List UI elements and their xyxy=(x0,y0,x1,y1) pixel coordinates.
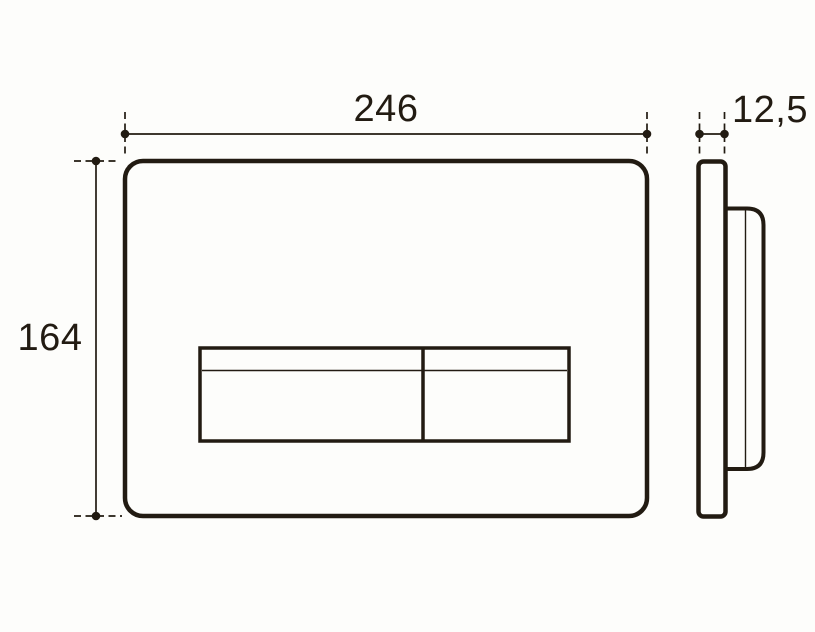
dimension-height-label: 164 xyxy=(18,317,83,359)
technical-drawing-canvas: 246 164 12,5 xyxy=(0,0,815,632)
plate-front-outline xyxy=(125,161,647,516)
plate-side-outline xyxy=(699,162,726,517)
dimension-endpoint-dot xyxy=(121,130,130,139)
dimension-endpoint-dot xyxy=(92,512,101,521)
dimension-endpoint-dot xyxy=(92,157,101,166)
dimension-depth-label: 12,5 xyxy=(732,89,808,131)
dimension-width: 246 xyxy=(121,88,652,158)
mounting-housing-outline xyxy=(726,209,764,470)
dimension-endpoint-dot xyxy=(720,130,729,139)
dimension-height: 164 xyxy=(18,157,122,521)
front-view xyxy=(125,161,647,516)
side-view xyxy=(699,162,764,517)
dimension-width-label: 246 xyxy=(354,88,419,130)
dimension-depth: 12,5 xyxy=(695,89,808,158)
dimension-endpoint-dot xyxy=(643,130,652,139)
flush-button-block xyxy=(200,348,569,441)
dimension-endpoint-dot xyxy=(695,130,704,139)
